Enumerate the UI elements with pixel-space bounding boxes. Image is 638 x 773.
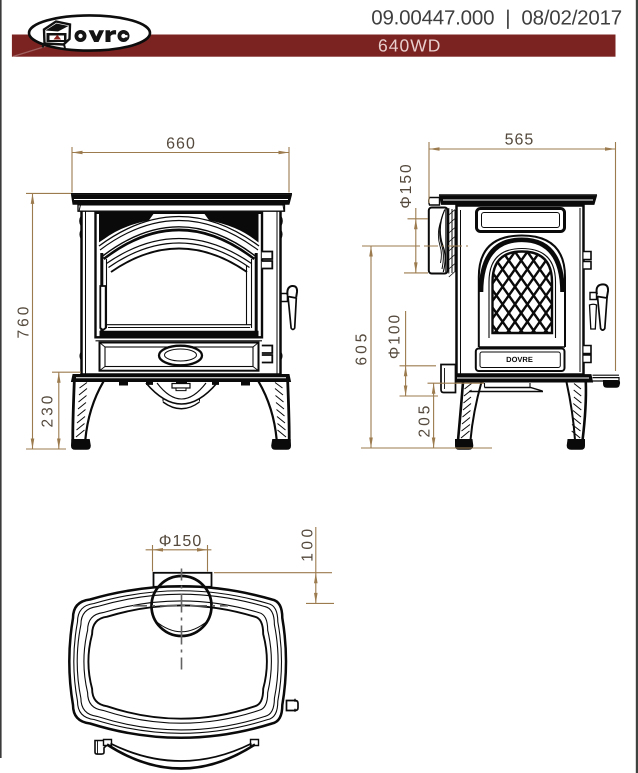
svg-text:205: 205: [417, 403, 434, 438]
svg-text:760: 760: [16, 304, 33, 339]
svg-text:Φ100: Φ100: [387, 313, 404, 359]
svg-text:09.00447.000 | 08/02/2017: 09.00447.000 | 08/02/2017: [371, 6, 622, 29]
svg-text:230: 230: [40, 393, 57, 428]
svg-text:565: 565: [505, 131, 535, 148]
svg-text:660: 660: [166, 135, 196, 152]
svg-text:Φ150: Φ150: [398, 162, 415, 208]
svg-text:Φ150: Φ150: [159, 533, 202, 550]
svg-text:605: 605: [354, 331, 371, 366]
svg-text:100: 100: [300, 525, 317, 561]
svg-text:640WD: 640WD: [378, 36, 441, 56]
svg-text:DOVRE: DOVRE: [506, 355, 533, 364]
